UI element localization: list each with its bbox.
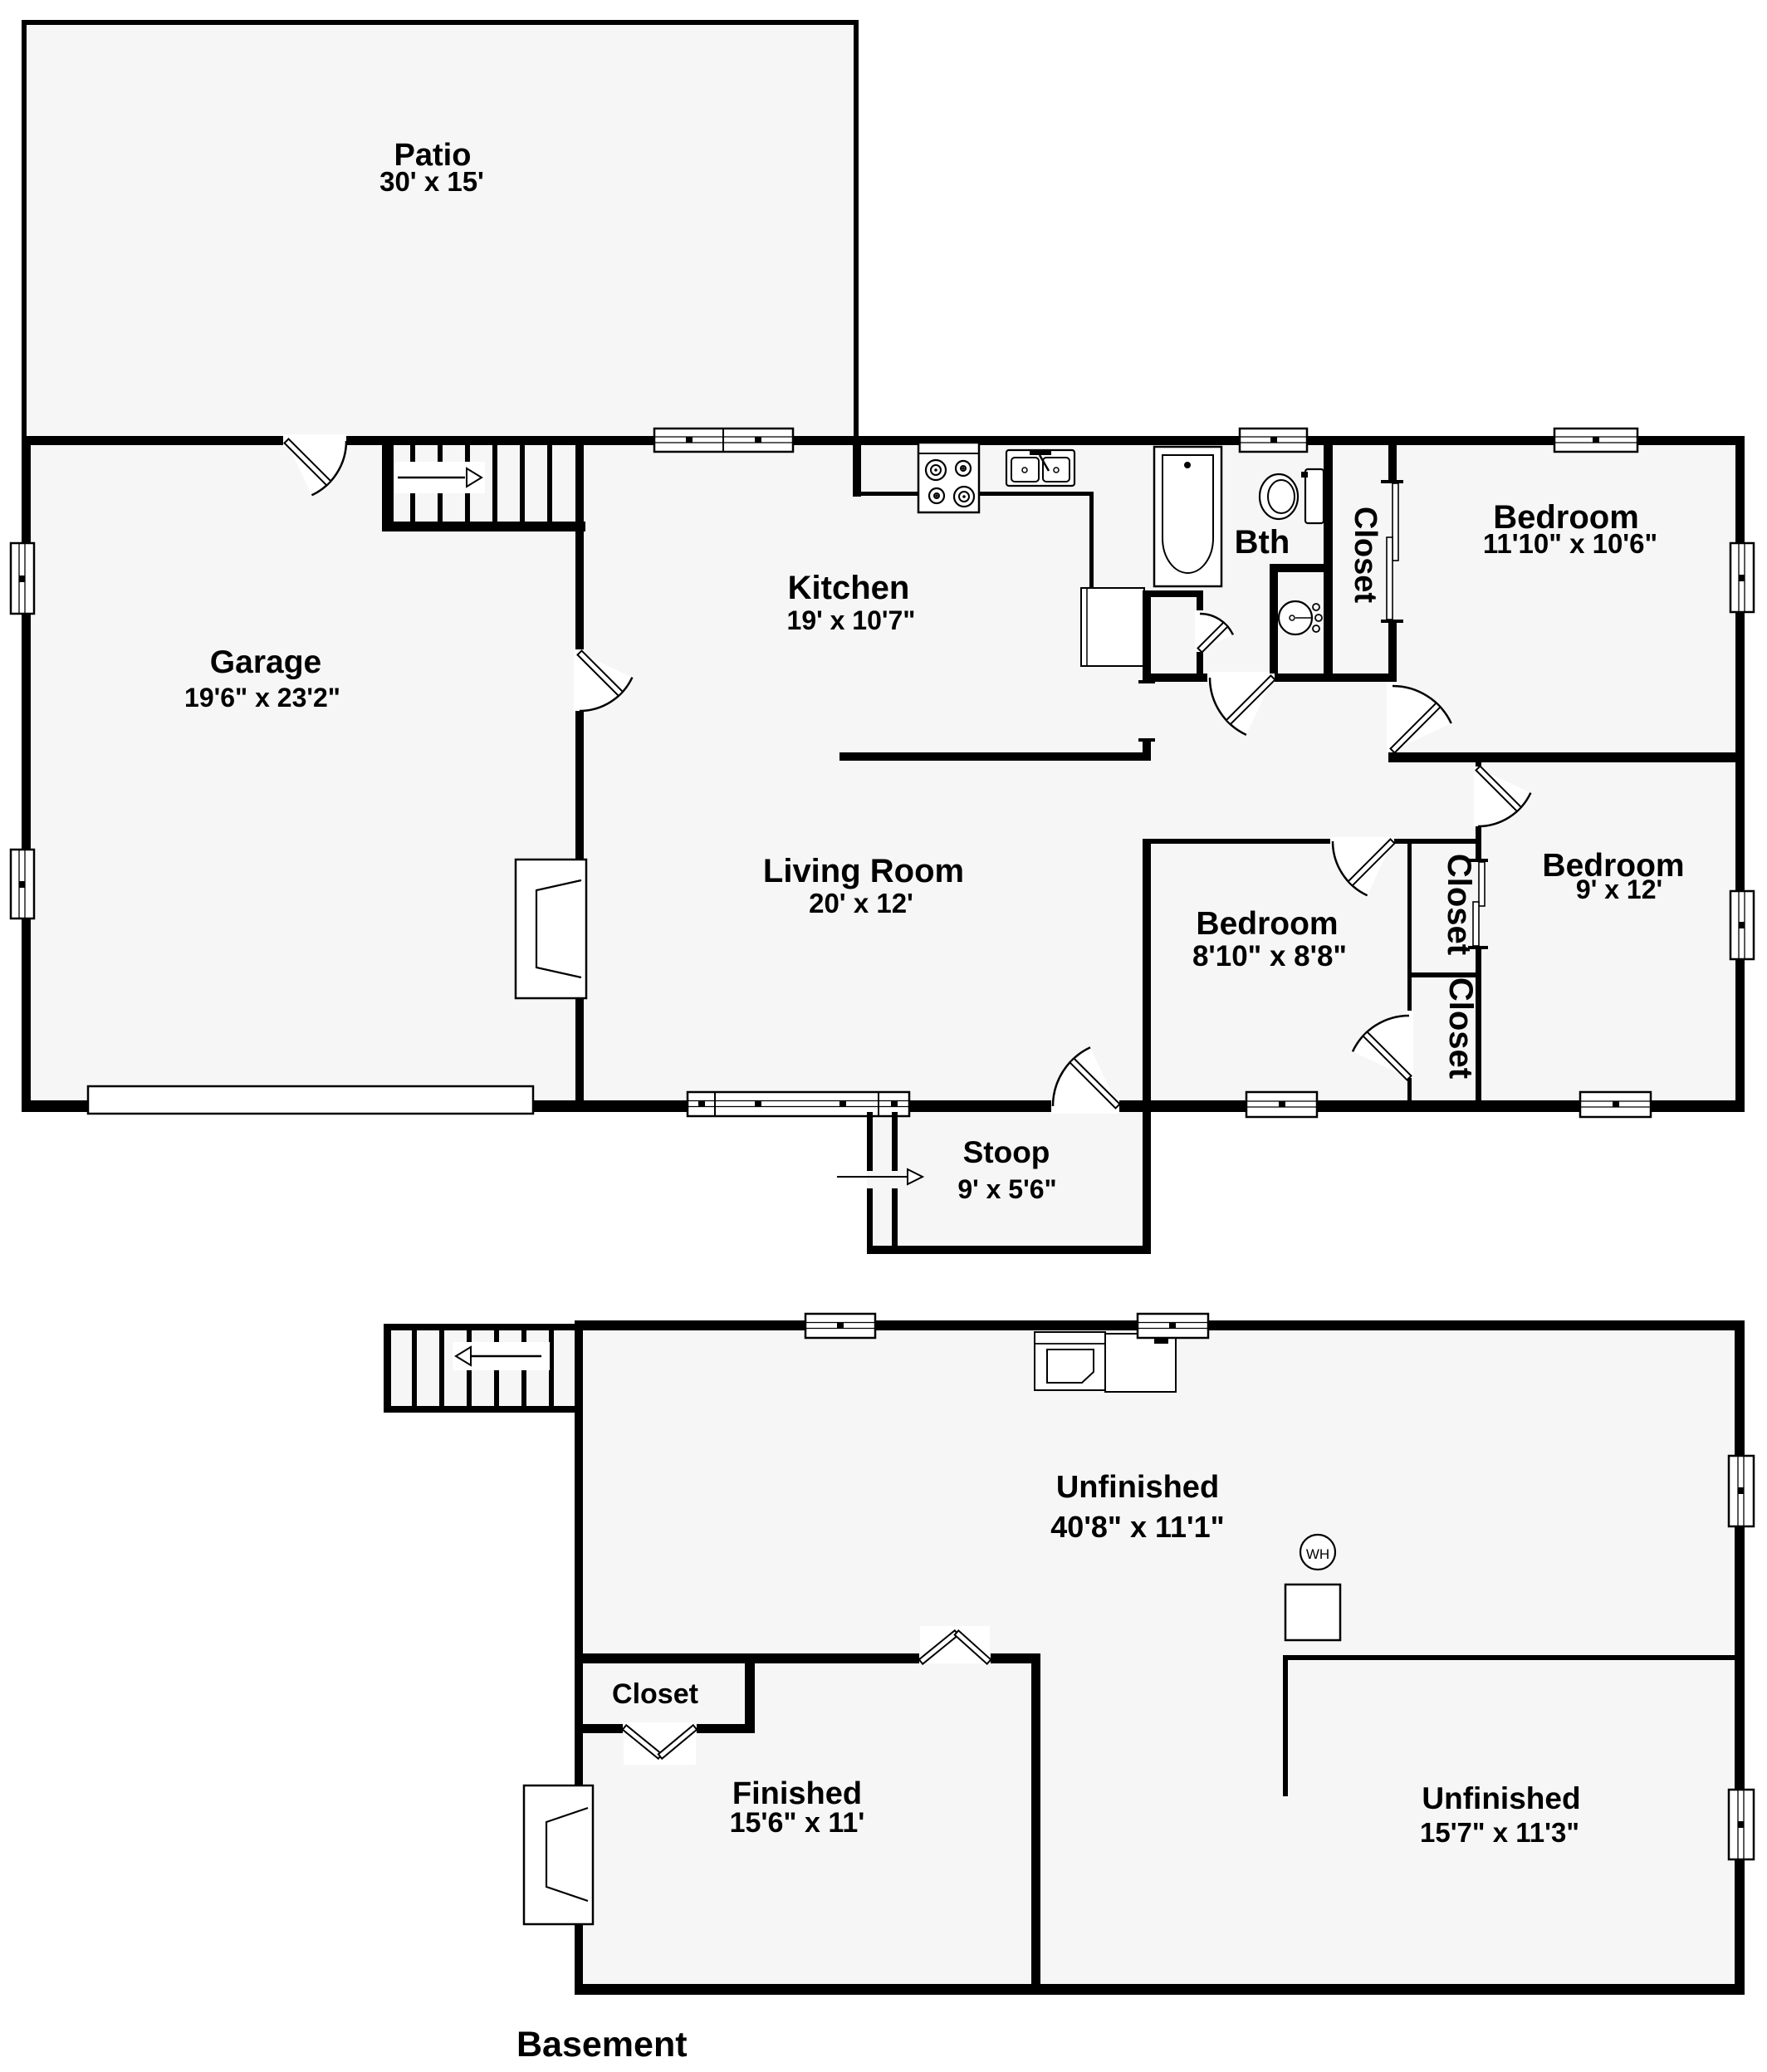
svg-text:30' x 15': 30' x 15'	[379, 166, 484, 197]
svg-text:Bth: Bth	[1235, 524, 1290, 561]
svg-text:Basement: Basement	[516, 2025, 688, 2065]
svg-text:9' x 5'6": 9' x 5'6"	[957, 1174, 1056, 1204]
svg-text:8'10" x 8'8": 8'10" x 8'8"	[1192, 940, 1347, 972]
svg-text:Unfinished: Unfinished	[1422, 1781, 1580, 1815]
svg-text:20' x 12': 20' x 12'	[809, 888, 913, 918]
svg-text:19'6" x 23'2": 19'6" x 23'2"	[184, 683, 340, 713]
svg-text:40'8" x 11'1": 40'8" x 11'1"	[1050, 1510, 1224, 1544]
svg-text:Stoop: Stoop	[963, 1135, 1050, 1169]
svg-text:Bedroom: Bedroom	[1196, 906, 1338, 942]
svg-text:Garage: Garage	[210, 644, 321, 680]
svg-text:Living Room: Living Room	[763, 853, 964, 889]
svg-text:15'7" x 11'3": 15'7" x 11'3"	[1420, 1817, 1579, 1848]
svg-text:11'10" x 10'6": 11'10" x 10'6"	[1483, 528, 1657, 559]
svg-text:Closet: Closet	[1442, 977, 1479, 1079]
svg-text:Kitchen: Kitchen	[788, 570, 910, 606]
svg-text:19' x 10'7": 19' x 10'7"	[787, 605, 916, 635]
svg-text:9' x 12': 9' x 12'	[1576, 874, 1662, 904]
svg-text:Unfinished: Unfinished	[1056, 1470, 1219, 1505]
svg-text:Closet: Closet	[1441, 854, 1477, 955]
svg-text:Closet: Closet	[612, 1678, 698, 1710]
svg-text:Finished: Finished	[732, 1776, 862, 1811]
svg-text:Closet: Closet	[1348, 507, 1383, 603]
svg-text:15'6" x 11': 15'6" x 11'	[730, 1807, 865, 1839]
svg-text:WH: WH	[1306, 1546, 1329, 1562]
